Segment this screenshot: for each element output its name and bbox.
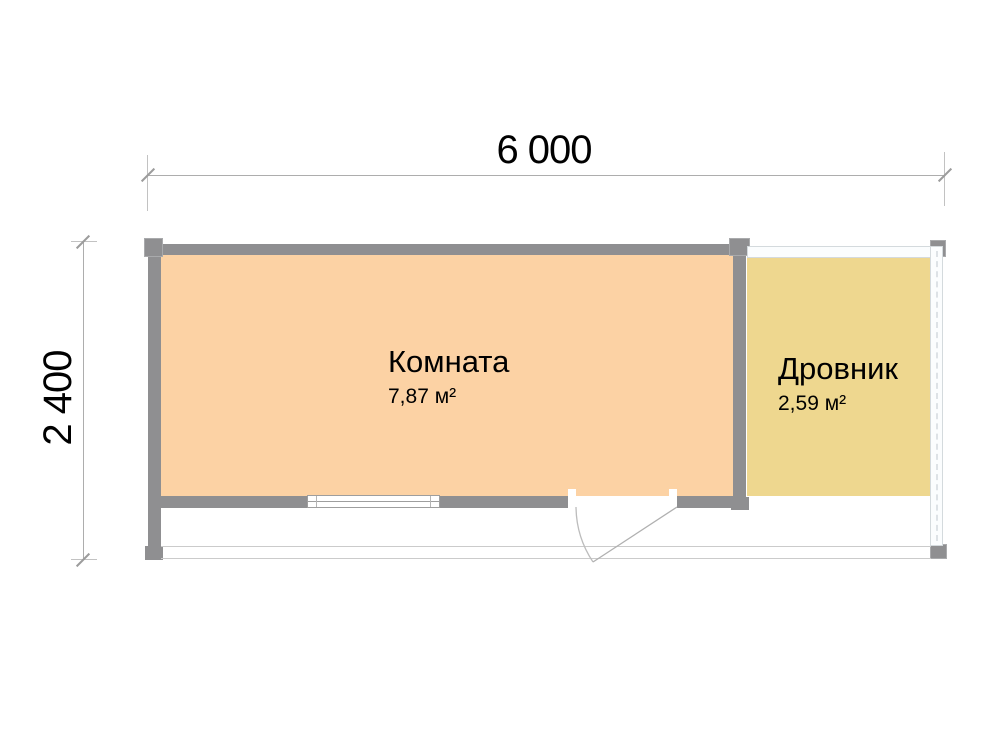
open-wall-right — [930, 246, 943, 546]
wall-bottom-middle-segment — [440, 496, 572, 508]
porch-edge-lower — [161, 558, 931, 559]
open-wall-right-dash — [936, 251, 938, 541]
door-leaf-icon — [593, 507, 677, 562]
door-arc-icon — [576, 507, 593, 562]
room-komnata-label: Комната 7,87 м² — [388, 345, 509, 408]
open-wall-top — [747, 246, 932, 258]
room-drovnik-label: Дровник 2,59 м² — [778, 352, 898, 415]
wall-divider-foot — [731, 497, 749, 510]
room-area: 7,87 м² — [388, 385, 509, 408]
dimension-depth-label: 2 400 — [36, 248, 80, 548]
wall-left — [148, 244, 161, 547]
dimension-width-ext-left — [147, 155, 148, 211]
window — [307, 495, 440, 508]
porch-edge-upper — [161, 546, 931, 547]
dimension-width-line — [148, 175, 945, 176]
dimension-width-ext-right — [944, 152, 945, 206]
floor-plan: 6 000 2 400 Ко — [0, 0, 1000, 750]
post-top-left — [144, 238, 163, 257]
wall-bottom-left-segment — [161, 496, 307, 508]
dimension-depth-line — [83, 242, 84, 560]
room-area: 2,59 м² — [778, 392, 898, 415]
wall-divider — [733, 244, 746, 510]
window-glass-line — [308, 501, 439, 502]
room-name: Дровник — [778, 352, 898, 386]
room-name: Комната — [388, 345, 509, 379]
window-jamb-line — [316, 496, 317, 507]
window-jamb-line — [430, 496, 431, 507]
dimension-width-label: 6 000 — [394, 128, 694, 172]
wall-top — [148, 244, 748, 255]
post-bottom-right — [930, 544, 947, 559]
door-swing — [560, 495, 695, 565]
